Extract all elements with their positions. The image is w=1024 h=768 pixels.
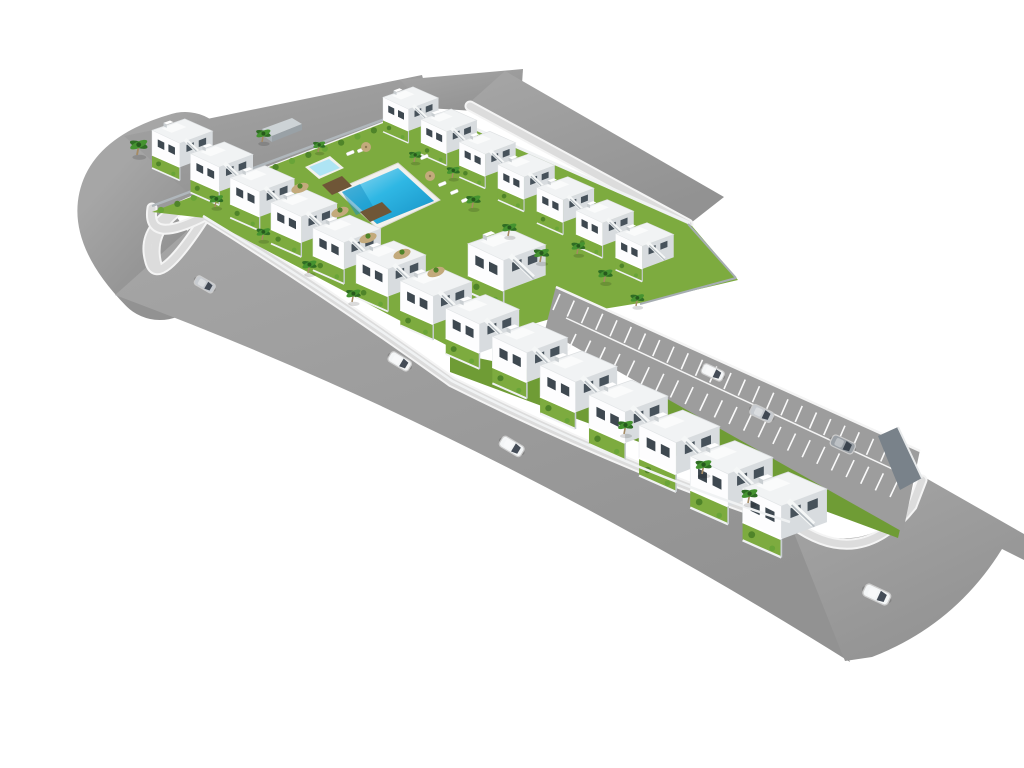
render-scene — [0, 0, 1024, 768]
architectural-render — [0, 0, 1024, 768]
